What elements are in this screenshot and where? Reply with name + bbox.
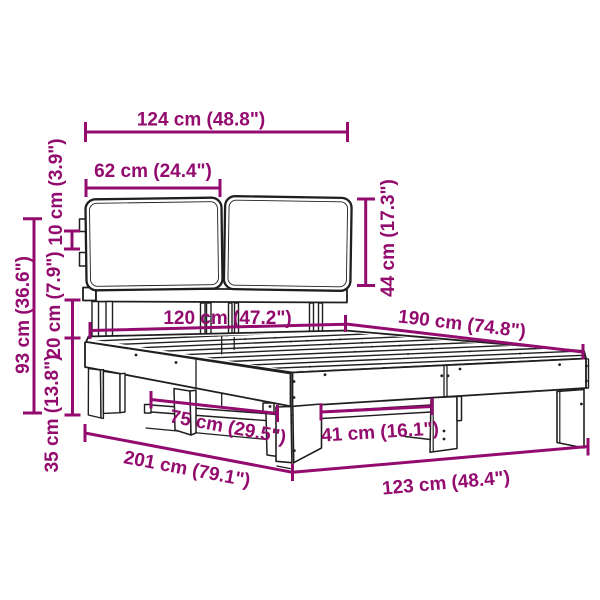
svg-text:10 cm (3.9"): 10 cm (3.9") <box>46 138 67 245</box>
svg-text:20 cm (7.9"): 20 cm (7.9") <box>44 251 65 358</box>
svg-text:93 cm (36.6"): 93 cm (36.6") <box>13 256 34 374</box>
svg-text:35 cm (13.8"): 35 cm (13.8") <box>42 355 63 473</box>
svg-text:44 cm (17.3"): 44 cm (17.3") <box>378 179 399 297</box>
svg-text:62 cm (24.4"): 62 cm (24.4") <box>94 161 212 182</box>
svg-text:124 cm (48.8"): 124 cm (48.8") <box>137 110 265 131</box>
svg-text:120 cm (47.2"): 120 cm (47.2") <box>163 308 291 329</box>
